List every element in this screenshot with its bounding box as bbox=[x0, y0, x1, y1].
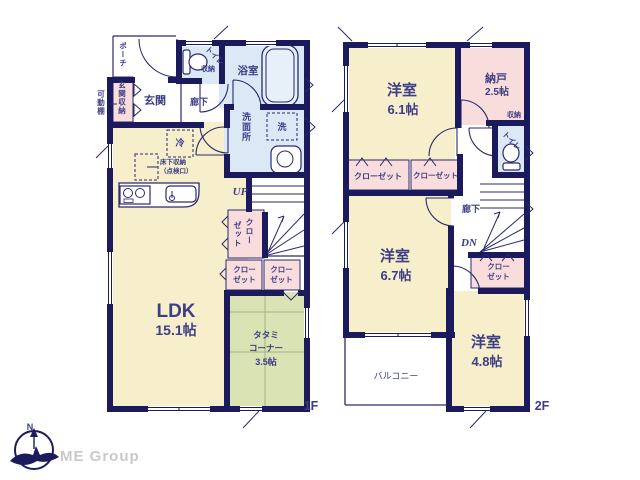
label-room61-size: 6.1帖 bbox=[372, 103, 434, 118]
label-room48-size: 4.8帖 bbox=[456, 355, 518, 370]
label-underfloor-1: 床下収納 bbox=[160, 159, 200, 166]
label-closet1b-1: クロー bbox=[266, 266, 297, 275]
label-tatami-2: コーナー bbox=[240, 344, 292, 354]
label-washroom: 洗面所 bbox=[241, 112, 250, 142]
compass-n-label: N bbox=[24, 422, 36, 432]
floor1-plan bbox=[96, 26, 315, 428]
label-room48-name: 洋室 bbox=[456, 334, 516, 351]
label-closet1a-1: クロー bbox=[229, 266, 260, 275]
bathtub bbox=[262, 45, 298, 106]
label-washer: 洗 bbox=[274, 122, 290, 132]
kitchen-counter bbox=[119, 183, 199, 207]
floorplan-canvas: ポーチ 可動棚 玄関収納 玄関 廊下 トイレ 収納 浴室 洗面所 洗 冷 床下収… bbox=[0, 0, 640, 480]
floor1-label: 1F bbox=[299, 399, 323, 413]
label-room67-size: 6.7帖 bbox=[365, 269, 427, 284]
label-closet1-tall-2: ゼット bbox=[233, 221, 241, 248]
label-ldk-name: LDK bbox=[136, 301, 216, 323]
label-storeroom-size: 2.5帖 bbox=[474, 87, 520, 99]
company-logo-text: ME Group bbox=[60, 448, 140, 465]
label-toilet-storage: 収納 bbox=[195, 66, 221, 74]
label-hallway-2f: 廊下 bbox=[458, 204, 484, 214]
label-underfloor-2: （点検口） bbox=[160, 168, 204, 175]
label-closet1-tall-1: クロー bbox=[245, 218, 253, 245]
label-room67-name: 洋室 bbox=[365, 248, 425, 265]
label-closet2c-1: クロー bbox=[482, 263, 515, 272]
label-closet2a: クローゼット bbox=[347, 172, 409, 181]
floor2-label: 2F bbox=[530, 399, 554, 413]
label-stairs-dn: DN bbox=[456, 237, 482, 250]
label-bathroom: 浴室 bbox=[231, 65, 265, 77]
label-movable-shelf: 可動棚 bbox=[97, 90, 105, 116]
label-entrance: 玄関 bbox=[135, 95, 175, 108]
label-closet1a-2: ゼット bbox=[229, 276, 260, 285]
label-tatami-1: タタミ bbox=[240, 331, 292, 341]
label-room61-name: 洋室 bbox=[372, 82, 432, 99]
washbasin bbox=[271, 146, 301, 173]
label-ldk-size: 15.1帖 bbox=[136, 322, 216, 338]
label-hallway-1f: 廊下 bbox=[186, 97, 212, 107]
label-fridge: 冷 bbox=[172, 138, 188, 148]
label-balcony: バルコニー bbox=[366, 371, 426, 381]
label-storeroom: 納戸 bbox=[474, 73, 518, 86]
label-entrance-storage: 玄関収納 bbox=[118, 81, 126, 115]
label-closet1b-2: ゼット bbox=[266, 276, 297, 285]
label-storage-2f: 収納 bbox=[501, 112, 527, 120]
label-stairs-up: UP bbox=[228, 186, 252, 199]
stairs2-steps bbox=[480, 184, 524, 252]
label-closet2b: クローゼット bbox=[411, 172, 460, 181]
label-porch: ポーチ bbox=[119, 42, 127, 68]
label-closet2c-2: ゼット bbox=[482, 273, 515, 282]
compass-logo bbox=[10, 428, 59, 469]
label-tatami-3: 3.5帖 bbox=[240, 357, 292, 367]
